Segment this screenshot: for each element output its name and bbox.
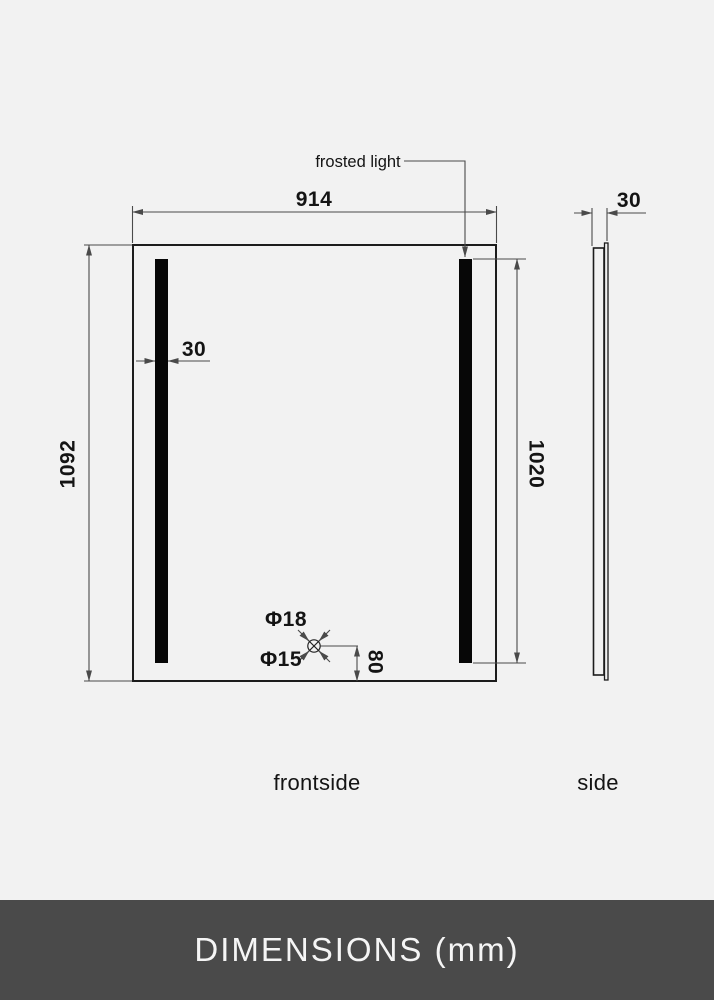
sensor-detail: Φ18 Φ15: [260, 608, 330, 671]
hole-outer-diameter: Φ18: [265, 608, 307, 631]
frosted-light-callout: frosted light: [315, 153, 465, 257]
side-profile-body: [594, 248, 605, 675]
mirror-outline: [133, 245, 496, 681]
dim-strip-width-value: 30: [182, 338, 206, 361]
dim-height: 1092: [57, 245, 132, 681]
dim-light-height-value: 1020: [524, 440, 547, 489]
leader-line: [404, 161, 465, 257]
side-profile-back-panel: [605, 243, 609, 680]
side-view: 30 side: [574, 189, 646, 795]
side-view-label: side: [577, 770, 619, 795]
dim-light-height: 1020: [473, 259, 547, 663]
dim-depth-value: 30: [617, 189, 641, 212]
footer-title: DIMENSIONS (mm): [194, 931, 519, 969]
led-strip-left: [155, 259, 168, 663]
hole-inner-diameter: Φ15: [260, 648, 302, 671]
leader-arrow: [319, 651, 330, 662]
dimension-drawing: 914 1092 1020 30 frosted light: [0, 0, 714, 900]
dim-width: 914: [133, 188, 497, 243]
dim-width-value: 914: [296, 188, 333, 211]
leader-arrow: [319, 630, 330, 641]
front-view-label: frontside: [273, 770, 360, 795]
dim-height-value: 1092: [57, 440, 80, 489]
dim-depth: 30: [574, 189, 646, 246]
led-strip-right: [459, 259, 472, 663]
front-view: 914 1092 1020 30 frosted light: [57, 153, 548, 795]
dim-hole-offset-value: 80: [363, 650, 386, 674]
leader-arrow: [298, 630, 309, 641]
dim-hole-offset: 80: [321, 646, 387, 681]
frosted-light-label: frosted light: [315, 153, 401, 171]
dim-strip-width: 30: [136, 338, 210, 361]
footer-bar: DIMENSIONS (mm): [0, 900, 714, 1000]
